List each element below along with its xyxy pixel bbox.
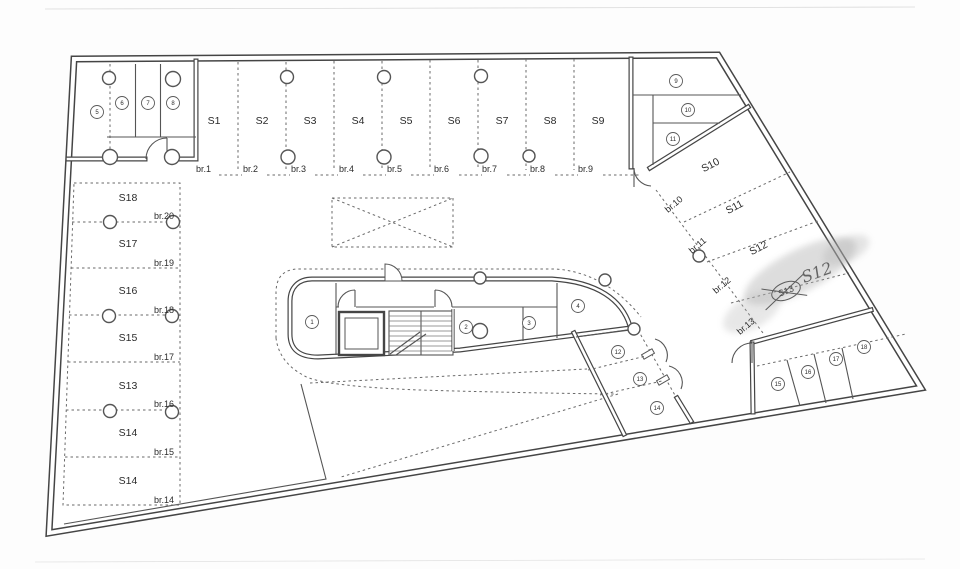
door-label: br.1 xyxy=(196,164,211,174)
stairs xyxy=(389,311,453,355)
space-label: S16 xyxy=(119,285,138,297)
door-label: br.16 xyxy=(154,399,174,409)
svg-text:15: 15 xyxy=(775,382,782,388)
door-label: br.6 xyxy=(434,164,449,174)
column xyxy=(281,150,295,164)
door-label: br.9 xyxy=(578,164,593,174)
unit-number: 6 xyxy=(116,97,129,110)
door-label: br.17 xyxy=(154,352,174,362)
space-label: S14 xyxy=(119,427,138,439)
space-label: S13 xyxy=(119,380,138,392)
space-label: S4 xyxy=(352,115,365,127)
column xyxy=(166,72,181,87)
svg-text:18: 18 xyxy=(861,345,868,351)
column xyxy=(378,71,391,84)
svg-text:11: 11 xyxy=(670,137,677,143)
column xyxy=(165,150,180,165)
space-label: S14 xyxy=(119,475,138,487)
space-label: S9 xyxy=(592,115,605,127)
space-label: S8 xyxy=(544,115,557,127)
space-label: S15 xyxy=(119,332,138,344)
svg-text:17: 17 xyxy=(833,357,840,363)
column xyxy=(377,150,391,164)
unit-number: 2 xyxy=(460,321,473,334)
column xyxy=(475,70,488,83)
door-label: br.18 xyxy=(154,305,174,315)
door-label: br.20 xyxy=(154,211,174,221)
door-label: br.8 xyxy=(530,164,545,174)
door-label: br.7 xyxy=(482,164,497,174)
space-label: S18 xyxy=(119,192,138,204)
column xyxy=(103,72,116,85)
door-label: br.14 xyxy=(154,495,174,505)
unit-number: 12 xyxy=(612,346,625,359)
unit-number: 17 xyxy=(830,353,843,366)
door-label: br.5 xyxy=(387,164,402,174)
unit-number: 5 xyxy=(91,106,104,119)
svg-text:10: 10 xyxy=(685,108,692,114)
door-label: br.4 xyxy=(339,164,354,174)
door-label: br.3 xyxy=(291,164,306,174)
column xyxy=(474,272,486,284)
space-label: S7 xyxy=(496,115,509,127)
floor-plan-drawing: S13 S12 xyxy=(0,0,960,569)
unit-number: 16 xyxy=(802,366,815,379)
column xyxy=(599,274,611,286)
space-label: S1 xyxy=(208,115,221,127)
door-label: br.2 xyxy=(243,164,258,174)
floor-plan-page: S13 S12 xyxy=(0,0,960,569)
unit-number: 9 xyxy=(670,75,683,88)
column xyxy=(473,324,488,339)
unit-number: 14 xyxy=(651,402,664,415)
column xyxy=(103,150,118,165)
column xyxy=(104,216,117,229)
unit-number: 15 xyxy=(772,378,785,391)
door-label: br.15 xyxy=(154,447,174,457)
column xyxy=(474,149,488,163)
unit-number: 4 xyxy=(572,300,585,313)
space-label: S3 xyxy=(304,115,317,127)
space-label: S17 xyxy=(119,238,138,250)
column xyxy=(103,310,116,323)
svg-text:13: 13 xyxy=(637,377,644,383)
door-label: br.19 xyxy=(154,258,174,268)
svg-text:16: 16 xyxy=(805,370,812,376)
unit-number: 1 xyxy=(306,316,319,329)
svg-text:12: 12 xyxy=(615,350,622,356)
elevator xyxy=(339,312,384,355)
unit-number: 11 xyxy=(667,133,680,146)
svg-text:14: 14 xyxy=(654,406,661,412)
space-label: S5 xyxy=(400,115,413,127)
column xyxy=(628,323,640,335)
space-label: S6 xyxy=(448,115,461,127)
column xyxy=(523,150,535,162)
unit-number: 10 xyxy=(682,104,695,117)
column xyxy=(281,71,294,84)
space-label: S2 xyxy=(256,115,269,127)
unit-number: 3 xyxy=(523,317,536,330)
unit-number: 8 xyxy=(167,97,180,110)
unit-number: 18 xyxy=(858,341,871,354)
unit-number: 13 xyxy=(634,373,647,386)
unit-number: 7 xyxy=(142,97,155,110)
column xyxy=(104,405,117,418)
